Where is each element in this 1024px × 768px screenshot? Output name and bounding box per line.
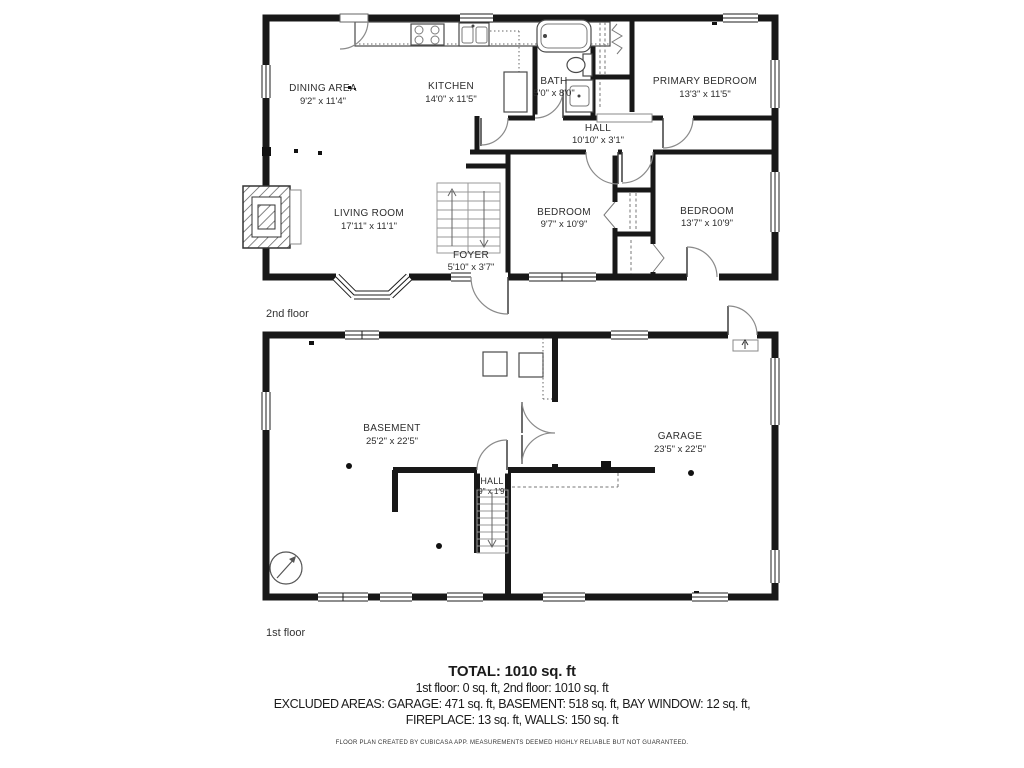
room-label-dining: DINING AREA bbox=[289, 83, 357, 94]
first-floor-plan: BASEMENT 25'2" x 22'5" HALL '9" x 1'9" G… bbox=[266, 306, 775, 639]
room-dims-foyer: 5'10" x 3'7" bbox=[448, 262, 495, 273]
staircase-first-floor bbox=[477, 490, 508, 553]
room-label-basement: BASEMENT bbox=[363, 423, 420, 434]
room-dims-hall-2f: 10'10" x 3'1" bbox=[572, 135, 624, 146]
kitchen-cabinet bbox=[504, 72, 527, 112]
second-floor-windows bbox=[266, 18, 775, 295]
fireplace bbox=[243, 186, 301, 248]
floorplan-canvas: DINING AREA 9'2" x 11'4" KITCHEN 14'0" x… bbox=[0, 0, 1024, 768]
room-label-primary-bedroom: PRIMARY BEDROOM bbox=[653, 76, 757, 87]
room-label-hall-1f: HALL bbox=[480, 476, 503, 486]
room-label-kitchen: KITCHEN bbox=[428, 81, 474, 92]
excluded-areas-line1: EXCLUDED AREAS: GARAGE: 471 sq. ft, BASE… bbox=[0, 696, 1024, 712]
room-label-garage: GARAGE bbox=[658, 431, 703, 442]
second-floor-interior-walls bbox=[466, 18, 775, 277]
room-label-hall-2f: HALL bbox=[585, 123, 611, 134]
room-dims-basement: 25'2" x 22'5" bbox=[366, 436, 418, 447]
floor-breakdown-text: 1st floor: 0 sq. ft, 2nd floor: 1010 sq.… bbox=[0, 680, 1024, 696]
staircase-second-floor bbox=[437, 183, 500, 253]
excluded-areas-line2: FIREPLACE: 13 sq. ft, WALLS: 150 sq. ft bbox=[0, 712, 1024, 728]
toilet-bowl-icon bbox=[567, 58, 585, 73]
cased-opening bbox=[597, 114, 652, 122]
floor-label-1st: 1st floor bbox=[266, 627, 305, 639]
closet-hanger-zigzag bbox=[612, 24, 622, 54]
floorplan-document: DINING AREA 9'2" x 11'4" KITCHEN 14'0" x… bbox=[0, 0, 1024, 768]
room-dims-bedroom-1: 9'7" x 10'9" bbox=[541, 219, 588, 230]
wall-step-nub bbox=[601, 461, 611, 470]
second-floor-outer-walls bbox=[266, 18, 775, 277]
room-label-bedroom-2: BEDROOM bbox=[680, 206, 734, 217]
total-area-text: TOTAL: 1010 sq. ft bbox=[0, 663, 1024, 680]
balcony-door-leaf bbox=[340, 14, 368, 22]
room-dims-hall-1f: '9" x 1'9" bbox=[477, 487, 508, 496]
floor-label-2nd: 2nd floor bbox=[266, 308, 309, 320]
room-dims-bedroom-2: 13'7" x 10'9" bbox=[681, 218, 733, 229]
ceiling-guide-dotted bbox=[543, 338, 552, 399]
room-label-living-room: LIVING ROOM bbox=[334, 208, 404, 219]
area-summary: TOTAL: 1010 sq. ft 1st floor: 0 sq. ft, … bbox=[0, 663, 1024, 746]
room-label-foyer: FOYER bbox=[453, 250, 489, 261]
second-floor-plan: DINING AREA 9'2" x 11'4" KITCHEN 14'0" x… bbox=[243, 14, 775, 320]
washer-icon bbox=[483, 352, 507, 376]
second-floor-doors bbox=[340, 14, 719, 314]
room-dims-dining: 9'2" x 11'4" bbox=[300, 96, 346, 107]
room-dims-living-room: 17'11" x 11'1" bbox=[341, 221, 397, 232]
room-dims-primary-bedroom: 13'3" x 11'5" bbox=[679, 89, 730, 100]
room-label-bedroom-1: BEDROOM bbox=[537, 207, 591, 218]
room-label-bath: BATH bbox=[540, 76, 567, 87]
stair-headroom-dashed bbox=[512, 473, 618, 487]
dryer-icon bbox=[519, 353, 543, 377]
laundry-appliances bbox=[483, 352, 543, 377]
compass-icon bbox=[270, 552, 302, 584]
room-dims-bath: 5'0" x 8'0" bbox=[533, 88, 575, 99]
disclaimer-text: FLOOR PLAN CREATED BY CUBICASA APP. MEAS… bbox=[0, 740, 1024, 746]
room-dims-kitchen: 14'0" x 11'5" bbox=[425, 94, 476, 105]
room-dims-garage: 23'5" x 22'5" bbox=[654, 444, 706, 455]
